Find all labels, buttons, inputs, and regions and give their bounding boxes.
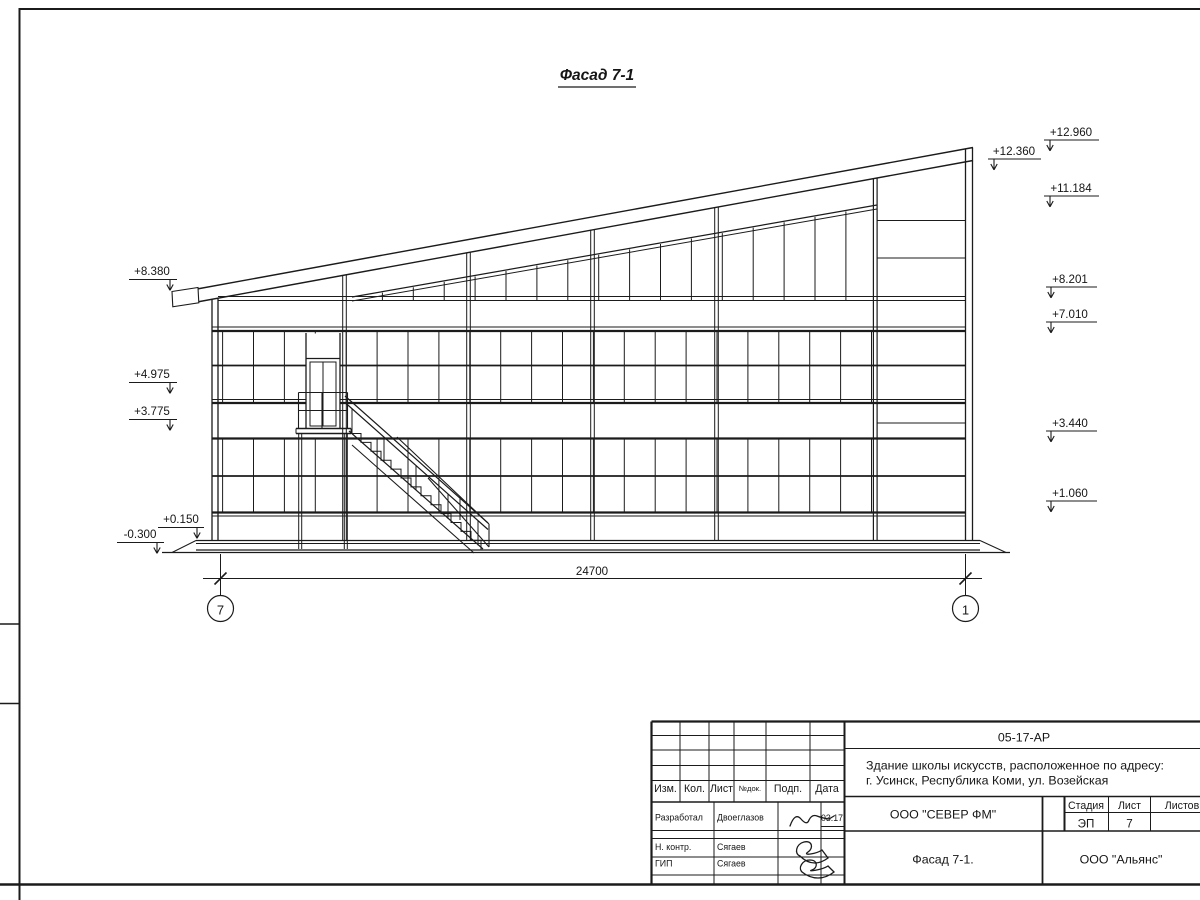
doc-number: 05-17-АР <box>998 731 1050 745</box>
elevation-mark-label: +12.360 <box>993 145 1035 158</box>
elevation-mark-label: +12.960 <box>1050 126 1092 139</box>
row-date: 03.17 <box>821 813 843 823</box>
col-podp: Подп. <box>774 783 802 795</box>
org2-name: ООО "Альянс" <box>1080 853 1163 867</box>
facade-linework <box>162 148 1010 553</box>
elevation-mark-label: +1.060 <box>1052 487 1088 500</box>
elevation-mark-label: +8.201 <box>1052 273 1088 286</box>
sheet-label: Лист <box>1118 800 1141 812</box>
elevation-mark-label: +4.975 <box>134 368 170 381</box>
col-data: Дата <box>815 783 839 795</box>
elevation-mark-label: +7.010 <box>1052 308 1088 321</box>
elevation-mark-label: +8.380 <box>134 265 170 278</box>
row-role: ГИП <box>655 859 672 869</box>
row-name: Двоеглазов <box>717 813 764 823</box>
project-name-line1: Здание школы искусств, расположенное по … <box>866 759 1164 773</box>
col-kol: Кол. <box>684 783 705 795</box>
axis-bubble-7-label: 7 <box>217 603 224 618</box>
total-dimension-label: 24700 <box>576 565 608 578</box>
axis-bubble-1-label: 1 <box>962 603 969 618</box>
stage-label: Стадия <box>1068 800 1104 812</box>
sheet-value: 7 <box>1126 818 1132 831</box>
sheet-title: Фасад 7-1. <box>912 853 973 867</box>
elevation-mark-label: -0.300 <box>124 528 157 541</box>
row-name: Сягаев <box>717 859 746 869</box>
elevation-mark-label: +11.184 <box>1050 182 1092 195</box>
row-role: Н. контр. <box>655 842 691 852</box>
org-name: ООО "СЕВЕР ФМ" <box>890 808 996 822</box>
col-list: Лист <box>710 783 733 795</box>
signatures <box>790 816 834 879</box>
col-ndok: №док. <box>739 784 761 793</box>
elevation-mark-label: +0.150 <box>163 513 199 526</box>
elevation-mark-label: +3.440 <box>1052 417 1088 430</box>
stage-value: ЭП <box>1078 818 1095 831</box>
elevation-mark-label: +3.775 <box>134 405 170 418</box>
col-izm: Изм. <box>654 783 677 795</box>
project-name-line2: г. Усинск, Республика Коми, ул. Возейска… <box>866 774 1108 788</box>
external-stair <box>345 396 489 553</box>
drawing-sheet: Фасад 7-1 +8.380 +4.975 +3.775 +0.150 -0… <box>0 0 1200 900</box>
elevation-marks-linework <box>117 140 1099 553</box>
view-title: Фасад 7-1 <box>560 67 634 84</box>
row-role: Разработал <box>655 813 703 823</box>
row-name: Сягаев <box>717 842 746 852</box>
facade-drawing: Фасад 7-1 +8.380 +4.975 +3.775 +0.150 -0… <box>0 0 1200 900</box>
sheets-label: Листов <box>1165 800 1200 812</box>
